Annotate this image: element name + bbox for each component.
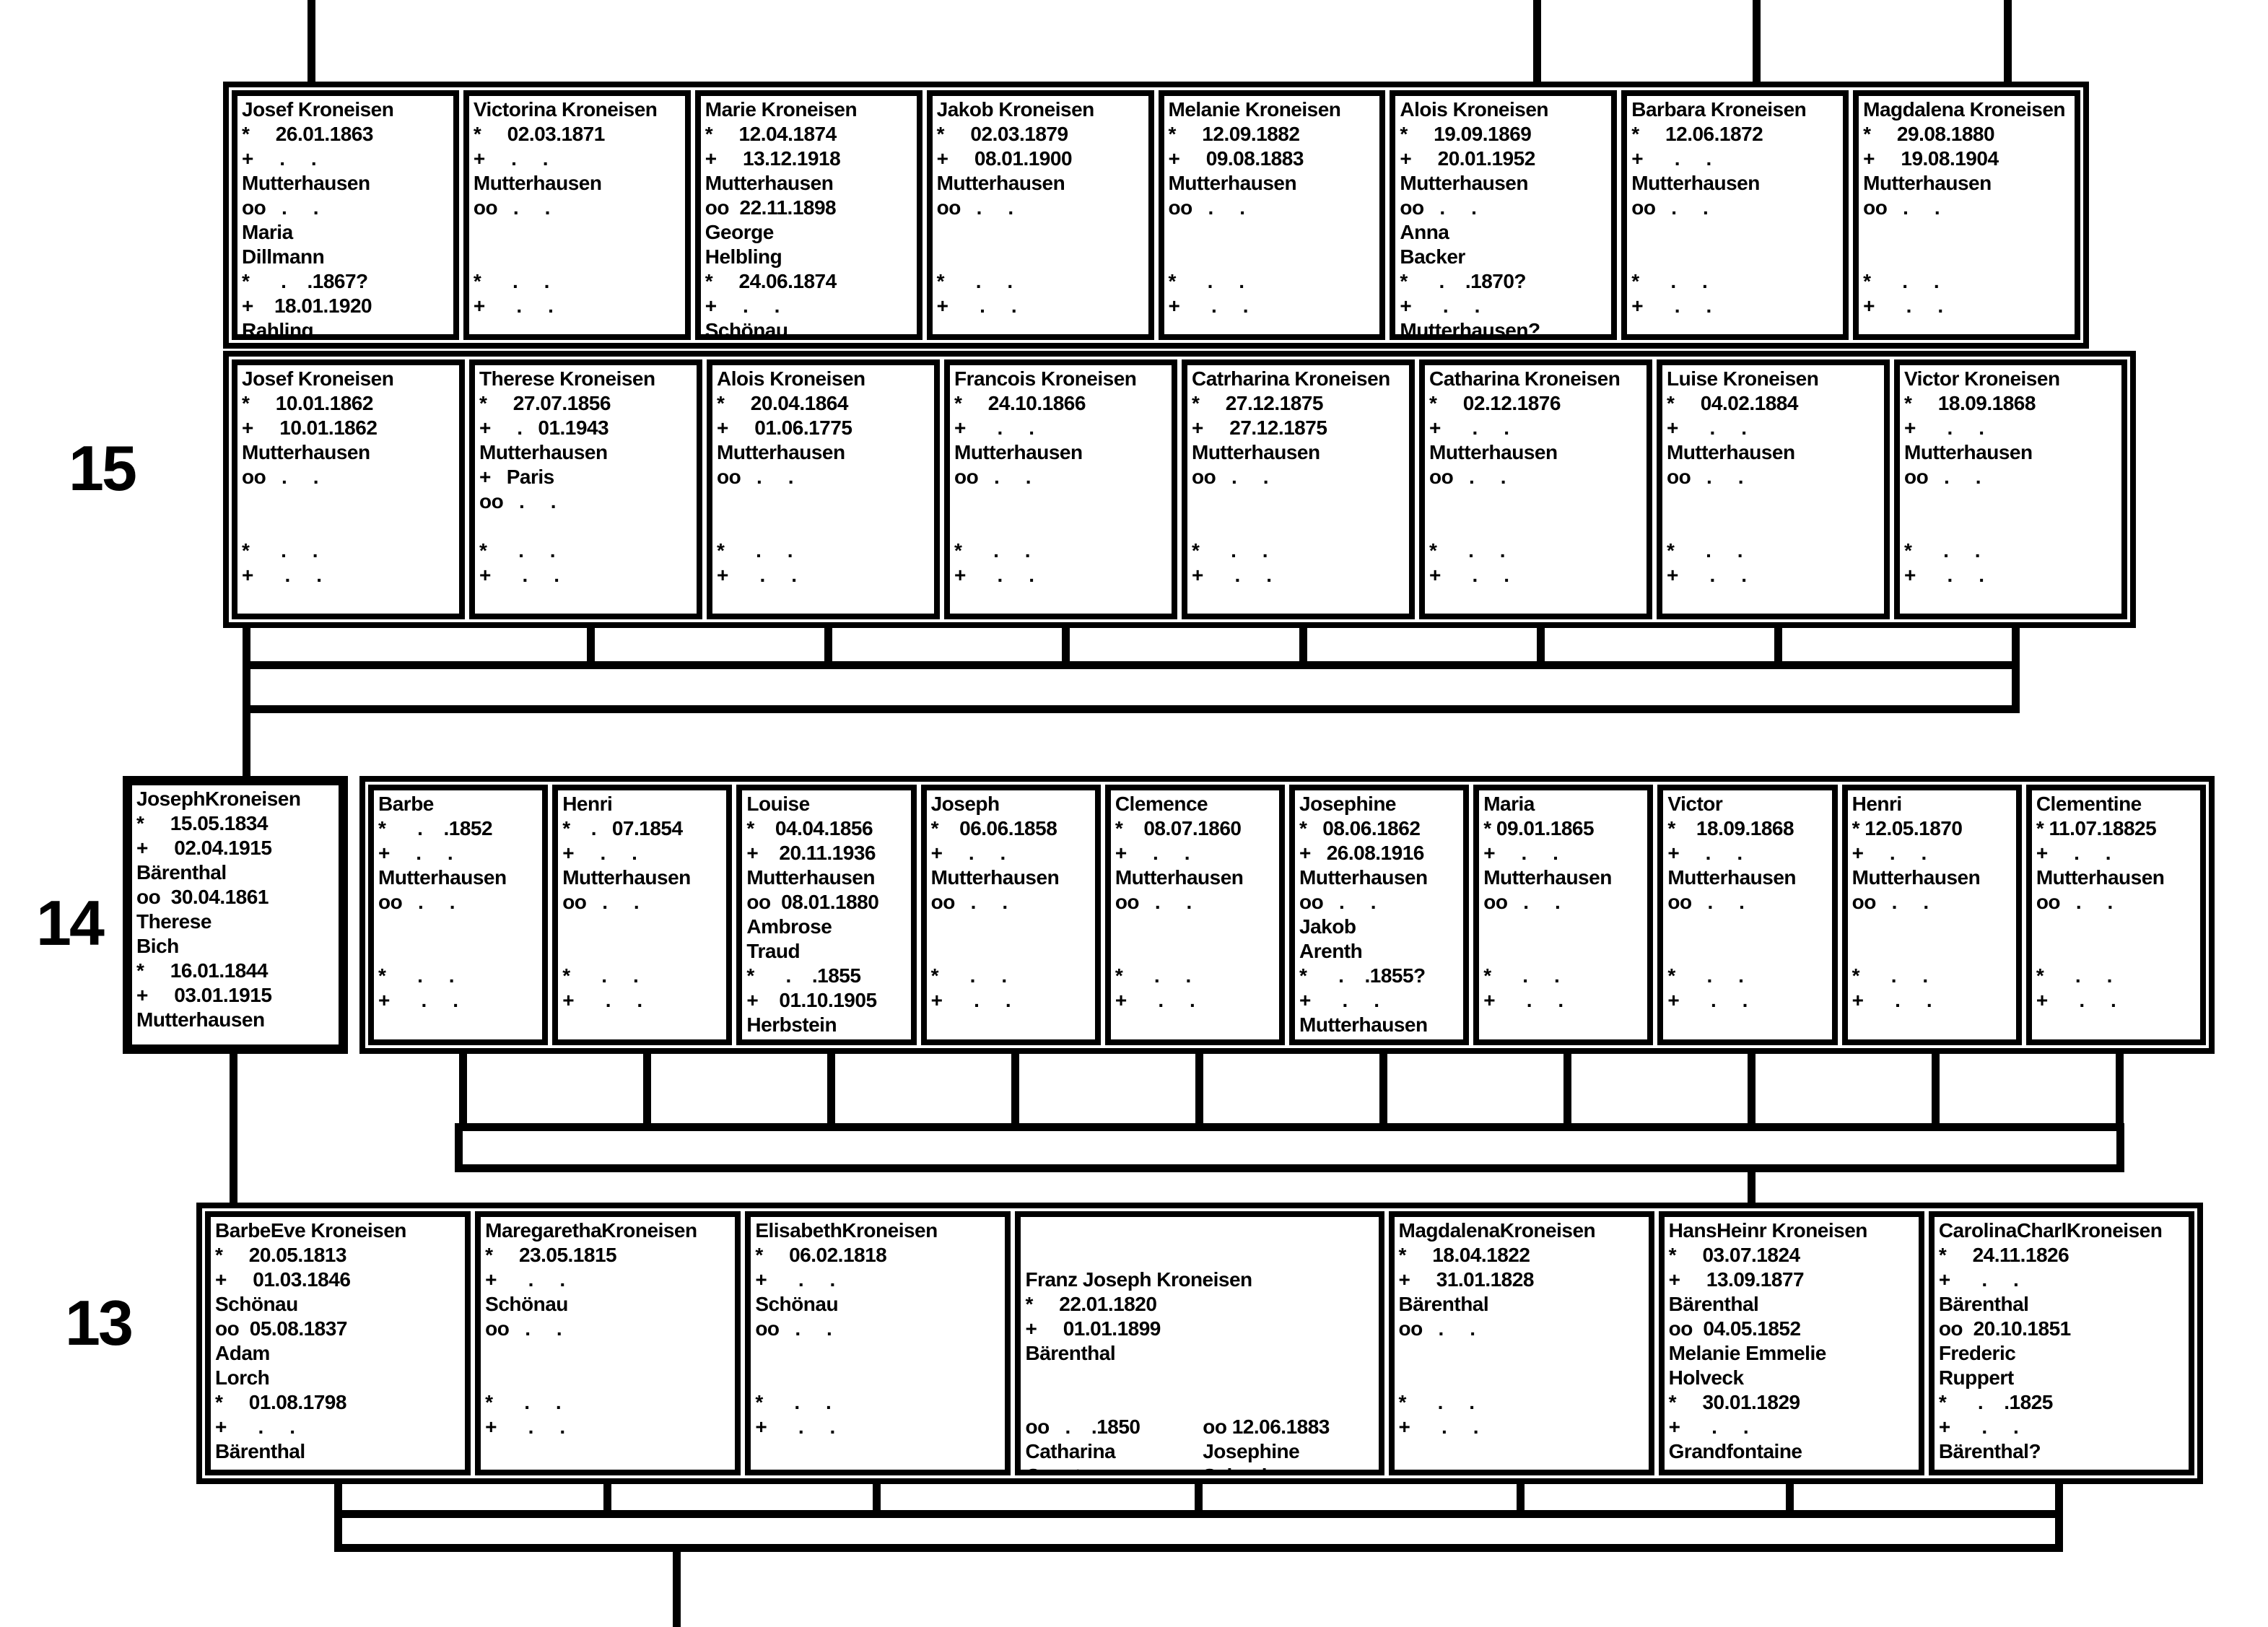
- generation-15-row-2: Josef Kroneisen * 10.01.1862 + 10.01.186…: [223, 351, 2136, 628]
- person-box-clementine: Clementine * 11.07.18825 + . . Mutterhau…: [2026, 785, 2206, 1045]
- person-box-magdalena-kroneisen-1822: MagdalenaKroneisen * 18.04.1822 + 31.01.…: [1389, 1211, 1654, 1475]
- person-box-maregaretha-kroneisen: MaregarethaKroneisen * 23.05.1815 + . . …: [475, 1211, 741, 1475]
- person-box-magdalena-kroneisen-1880: Magdalena Kroneisen * 29.08.1880 + 19.08…: [1853, 90, 2080, 340]
- person-box-hansheinr-kroneisen: HansHeinr Kroneisen * 03.07.1824 + 13.09…: [1659, 1211, 1924, 1475]
- person-box-jakob-kroneisen: Jakob Kroneisen * 02.03.1879 + 08.01.190…: [927, 90, 1154, 340]
- person-box-clemence: Clemence * 08.07.1860 + . . Mutterhausen…: [1105, 785, 1285, 1045]
- person-box-barbara-kroneisen: Barbara Kroneisen * 12.06.1872 + . . Mut…: [1621, 90, 1849, 340]
- connector-tooth: [643, 1048, 651, 1131]
- person-box-louise: Louise * 04.04.1856 + 20.11.1936 Mutterh…: [736, 785, 916, 1045]
- generation-label-14: 14: [36, 886, 103, 960]
- connector-tooth: [1195, 1048, 1203, 1131]
- person-box-josef-kroneisen-1863: Josef Kroneisen * 26.01.1863 + . . Mutte…: [232, 90, 459, 340]
- person-box-melanie-kroneisen: Melanie Kroneisen * 12.09.1882 + 09.08.1…: [1159, 90, 1386, 340]
- connector-tooth: [2116, 1048, 2124, 1131]
- marriage-1-details: oo . .1850 Catharina Ganster * . .1825? …: [1025, 1415, 1203, 1475]
- connector-stub-top: [2004, 0, 2012, 88]
- connector-tooth: [827, 1048, 835, 1131]
- connector-tooth: [1011, 1048, 1019, 1131]
- person-box-joseph-1858: Joseph * 06.06.1858 + . . Mutterhausen o…: [921, 785, 1101, 1045]
- connector-tooth: [1563, 1048, 1571, 1131]
- generation-15-row-1: Josef Kroneisen * 26.01.1863 + . . Mutte…: [223, 82, 2089, 349]
- connector-stub-top: [308, 0, 315, 88]
- sibling-rail-gen14: [455, 1123, 2124, 1172]
- connector-parent-line: [230, 1048, 237, 1207]
- person-box-barbeeve-kroneisen: BarbeEve Kroneisen * 20.05.1813 + 01.03.…: [205, 1211, 471, 1475]
- connector-parent-line: [673, 1548, 681, 1627]
- family-tree-page: 15 14 13 Josef Kroneisen * 26.01.1863 + …: [0, 0, 2268, 1627]
- person-box-henri-1854: Henri * . 07.1854 + . . Mutterhausen oo …: [552, 785, 732, 1045]
- generation-13-row: BarbeEve Kroneisen * 20.05.1813 + 01.03.…: [196, 1203, 2203, 1484]
- person-box-josef-kroneisen-1862: Josef Kroneisen * 10.01.1862 + 10.01.186…: [232, 359, 465, 619]
- sibling-rail-gen13: [334, 1510, 2063, 1552]
- person-box-barbe: Barbe * . .1852 + . . Mutterhausen oo . …: [368, 785, 548, 1045]
- person-box-henri-1870: Henri * 12.05.1870 + . . Mutterhausen oo…: [1842, 785, 2022, 1045]
- connector-tooth: [459, 1048, 467, 1131]
- person-box-victor-1868: Victor * 18.09.1868 + . . Mutterhausen o…: [1657, 785, 1837, 1045]
- person-box-catharina-kroneisen: Catharina Kroneisen * 02.12.1876 + . . M…: [1419, 359, 1652, 619]
- person-box-alois-kroneisen-1864: Alois Kroneisen * 20.04.1864 + 01.06.177…: [707, 359, 940, 619]
- person-box-luise-kroneisen: Luise Kroneisen * 04.02.1884 + . . Mutte…: [1657, 359, 1890, 619]
- person-box-alois-kroneisen-1869: Alois Kroneisen * 19.09.1869 + 20.01.195…: [1390, 90, 1617, 340]
- marriage-2-details: oo 12.06.1883 Josephine Schenk * . .1826…: [1203, 1415, 1374, 1475]
- connector-tooth: [1932, 1048, 1940, 1131]
- person-box-elisabeth-kroneisen: ElisabethKroneisen * 06.02.1818 + . . Sc…: [745, 1211, 1011, 1475]
- sibling-rail-gen15: [243, 661, 2020, 713]
- person-box-franz-joseph-kroneisen: Franz Joseph Kroneisen * 22.01.1820 + 01…: [1015, 1211, 1384, 1475]
- person-box-therese-kroneisen: Therese Kroneisen * 27.07.1856 + . 01.19…: [469, 359, 702, 619]
- person-box-josephine-1862: Josephine * 08.06.1862 + 26.08.1916 Mutt…: [1289, 785, 1469, 1045]
- connector-stub-top: [1753, 0, 1761, 88]
- generation-label-15: 15: [69, 432, 135, 505]
- generation-label-13: 13: [65, 1286, 131, 1360]
- connector-stub-top: [1533, 0, 1541, 88]
- person-box-maria-1865: Maria * 09.01.1865 + . . Mutterhausen oo…: [1473, 785, 1653, 1045]
- person-box-victorina-kroneisen: Victorina Kroneisen * 02.03.1871 + . . M…: [463, 90, 691, 340]
- person-box-victor-kroneisen-1868: Victor Kroneisen * 18.09.1868 + . . Mutt…: [1894, 359, 2127, 619]
- person-box-joseph-kroneisen-1834: JosephKroneisen * 15.05.1834 + 02.04.191…: [123, 776, 348, 1054]
- person-box-francois-kroneisen: Francois Kroneisen * 24.10.1866 + . . Mu…: [944, 359, 1177, 619]
- connector-tooth: [1379, 1048, 1387, 1131]
- person-box-carolinacharl-kroneisen: CarolinaCharlKroneisen * 24.11.1826 + . …: [1929, 1211, 2194, 1475]
- person-box-catrharina-kroneisen: Catrharina Kroneisen * 27.12.1875 + 27.1…: [1182, 359, 1415, 619]
- generation-14-row: Barbe * . .1852 + . . Mutterhausen oo . …: [359, 776, 2215, 1054]
- person-box-marie-kroneisen: Marie Kroneisen * 12.04.1874 + 13.12.191…: [695, 90, 923, 340]
- person-head: Franz Joseph Kroneisen * 22.01.1820 + 01…: [1025, 1268, 1374, 1366]
